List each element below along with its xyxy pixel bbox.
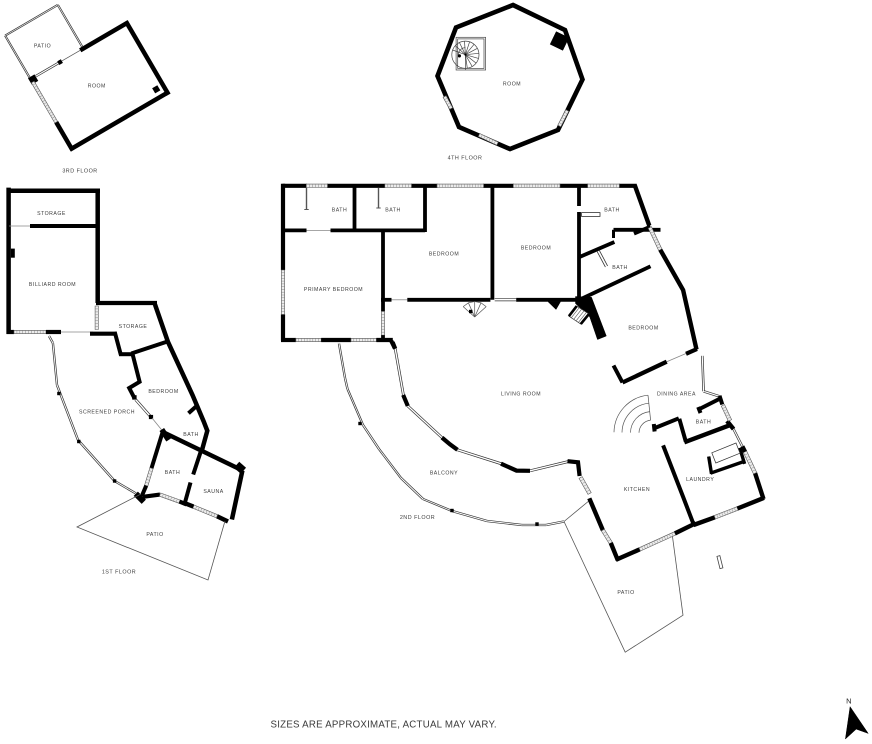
svg-text:LAUNDRY: LAUNDRY bbox=[686, 477, 714, 483]
svg-text:KITCHEN: KITCHEN bbox=[624, 487, 650, 493]
svg-text:PATIO: PATIO bbox=[617, 590, 634, 596]
svg-text:BATH: BATH bbox=[696, 420, 711, 426]
svg-text:BATH: BATH bbox=[385, 207, 400, 213]
svg-text:1ST FLOOR: 1ST FLOOR bbox=[102, 570, 136, 576]
svg-text:ROOM: ROOM bbox=[88, 84, 106, 90]
svg-text:BATH: BATH bbox=[183, 432, 198, 438]
svg-text:PRIMARY BEDROOM: PRIMARY BEDROOM bbox=[304, 287, 363, 293]
svg-text:SAUNA: SAUNA bbox=[203, 489, 223, 495]
svg-text:BALCONY: BALCONY bbox=[430, 471, 458, 477]
svg-text:N: N bbox=[846, 697, 851, 706]
svg-text:BATH: BATH bbox=[612, 265, 627, 271]
svg-text:BATH: BATH bbox=[332, 207, 347, 213]
svg-text:LIVING ROOM: LIVING ROOM bbox=[501, 392, 541, 398]
svg-text:PATIO: PATIO bbox=[34, 44, 51, 50]
svg-text:BEDROOM: BEDROOM bbox=[521, 246, 551, 252]
svg-text:BEDROOM: BEDROOM bbox=[148, 389, 178, 395]
svg-text:STORAGE: STORAGE bbox=[119, 324, 148, 330]
svg-text:DINING AREA: DINING AREA bbox=[657, 392, 696, 398]
svg-text:ROOM: ROOM bbox=[503, 82, 521, 88]
svg-text:BATH: BATH bbox=[604, 207, 619, 213]
svg-text:3RD FLOOR: 3RD FLOOR bbox=[62, 169, 97, 175]
svg-text:STORAGE: STORAGE bbox=[37, 211, 66, 217]
svg-text:BEDROOM: BEDROOM bbox=[429, 252, 459, 258]
svg-text:BATH: BATH bbox=[165, 470, 180, 476]
svg-text:SCREENED PORCH: SCREENED PORCH bbox=[79, 410, 135, 416]
svg-text:BEDROOM: BEDROOM bbox=[628, 326, 658, 332]
svg-text:2ND FLOOR: 2ND FLOOR bbox=[400, 515, 435, 521]
svg-text:4TH FLOOR: 4TH FLOOR bbox=[448, 156, 483, 162]
svg-text:PATIO: PATIO bbox=[146, 532, 163, 538]
svg-text:BILLIARD ROOM: BILLIARD ROOM bbox=[29, 282, 76, 288]
svg-text:SIZES ARE APPROXIMATE, ACTUAL: SIZES ARE APPROXIMATE, ACTUAL MAY VARY. bbox=[271, 720, 497, 731]
